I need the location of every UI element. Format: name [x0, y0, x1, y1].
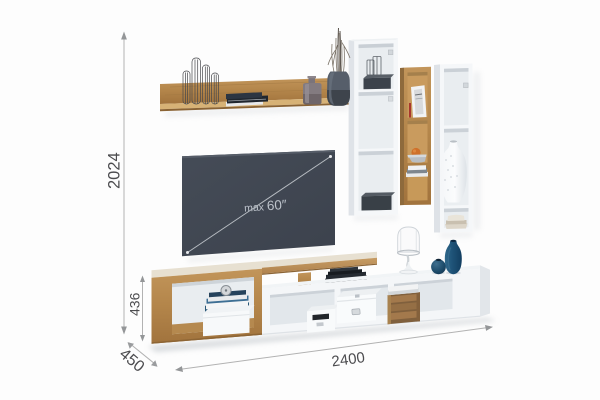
- svg-text:436: 436: [126, 292, 142, 316]
- svg-text:2024: 2024: [106, 152, 124, 189]
